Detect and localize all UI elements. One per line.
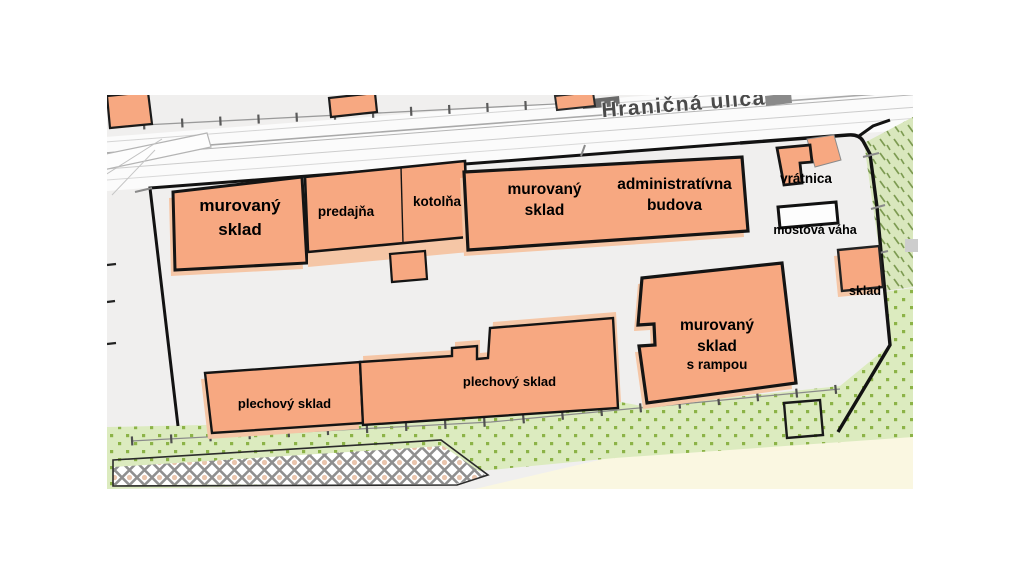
building-murovany-sklad-rampa: [638, 263, 796, 403]
building-plechovy-sklad-west: [205, 362, 363, 433]
site-plan-svg: [107, 95, 913, 489]
building-sklad-small: [838, 246, 883, 291]
building-murovany-sklad-west: [173, 177, 307, 270]
page: { "street": { "name": "Hraničná ulica" }…: [0, 0, 1028, 570]
building-annex-south: [390, 251, 427, 282]
building-partial-northwest: [107, 95, 152, 128]
map-canvas[interactable]: Hraničná ulica murovaný sklad predajňa k…: [107, 95, 913, 489]
map-edge-tab: [905, 239, 918, 252]
building-partial-north: [329, 95, 377, 117]
weighbridge: [778, 202, 838, 228]
building-predajna-kotolna: [305, 161, 468, 252]
